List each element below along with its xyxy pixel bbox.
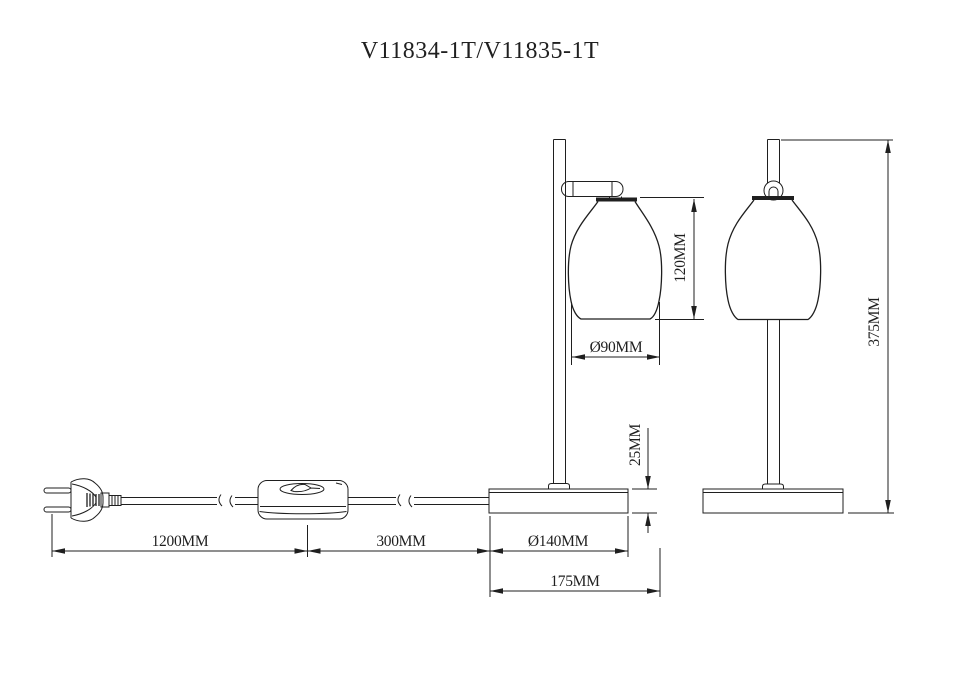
drawing-sheet: V11834-1T/V11835-1T [0, 0, 960, 678]
arrowhead [615, 548, 628, 554]
arrowhead [295, 548, 308, 554]
lamp-shade-front [568, 202, 661, 320]
cord-segment-1 [121, 498, 217, 505]
power-plug [44, 479, 121, 522]
pole-flange-side [763, 484, 784, 489]
cord-segment-4 [414, 498, 489, 505]
switch-rocker-opening [280, 484, 324, 495]
lamp-arm-joints [573, 182, 612, 197]
shade-top-plate-front [596, 198, 637, 202]
side-view [703, 140, 843, 514]
dimension-shade-diameter-90mm: Ø90MM [572, 302, 661, 365]
arrowhead [647, 354, 660, 360]
lamp-pole-side-lower [768, 320, 780, 485]
lamp-arm [562, 182, 624, 197]
lamp-shade-side [725, 200, 820, 320]
technical-drawing: V11834-1T/V11835-1T [0, 0, 960, 678]
cord-segment-2 [235, 498, 258, 505]
dimension-shade-height-120mm: 120MM [640, 198, 704, 320]
shade-top-plate-side [752, 196, 794, 200]
plug-prong-top [44, 488, 71, 493]
plug-cable-grip [87, 493, 121, 507]
lamp-base-front [489, 489, 628, 513]
dimension-label-175mm: 175MM [550, 573, 600, 590]
drawing-title: V11834-1T/V11835-1T [361, 38, 599, 64]
arrowhead [52, 548, 65, 554]
dimension-cord-1200mm: 1200MM 300MM Ø140MM [52, 514, 628, 597]
arrowhead [885, 500, 891, 513]
arrowhead [645, 476, 651, 489]
switch-rocker [291, 484, 320, 491]
dimension-label-90mm: Ø90MM [590, 339, 643, 356]
cord-break-2 [398, 495, 412, 508]
arrowhead [691, 306, 697, 319]
lamp-pole-front [554, 140, 566, 484]
dimension-label-base-diameter: Ø140MM [528, 533, 589, 550]
extension-lines [52, 514, 628, 597]
cord-break-1 [219, 495, 233, 508]
pole-flange-front [549, 484, 570, 490]
extension-lines [632, 489, 657, 513]
dimension-label-300mm: 300MM [376, 533, 426, 550]
switch-detail-tick [336, 483, 342, 485]
dimension-label-25mm: 25MM [627, 424, 644, 466]
arrowhead [490, 588, 503, 594]
dimension-label-375mm: 375MM [866, 297, 883, 347]
plug-prong-bottom [44, 507, 71, 512]
dimension-overall-depth-175mm: 175MM [490, 548, 660, 597]
arrowhead [691, 199, 697, 212]
lamp-base-side [703, 489, 843, 513]
dimension-label-1200mm: 1200MM [152, 533, 209, 550]
switch-seam [260, 507, 347, 514]
arrowhead [645, 513, 651, 526]
arm-end-clamp [769, 187, 778, 198]
inline-switch [258, 481, 348, 520]
lamp-pole-side-upper [768, 140, 780, 184]
power-cord [121, 495, 489, 508]
dimension-overall-height-375mm: 375MM [781, 140, 894, 513]
dimension-base-height-25mm: 25MM [627, 424, 657, 533]
dimension-label-120mm: 120MM [672, 233, 689, 283]
cord-segment-3 [348, 498, 396, 505]
plug-collar [101, 493, 109, 507]
arrowhead [308, 548, 321, 554]
arrowhead [477, 548, 490, 554]
arrowhead [885, 140, 891, 153]
arrowhead [490, 548, 503, 554]
arrowhead [647, 588, 660, 594]
arrowhead [572, 354, 585, 360]
